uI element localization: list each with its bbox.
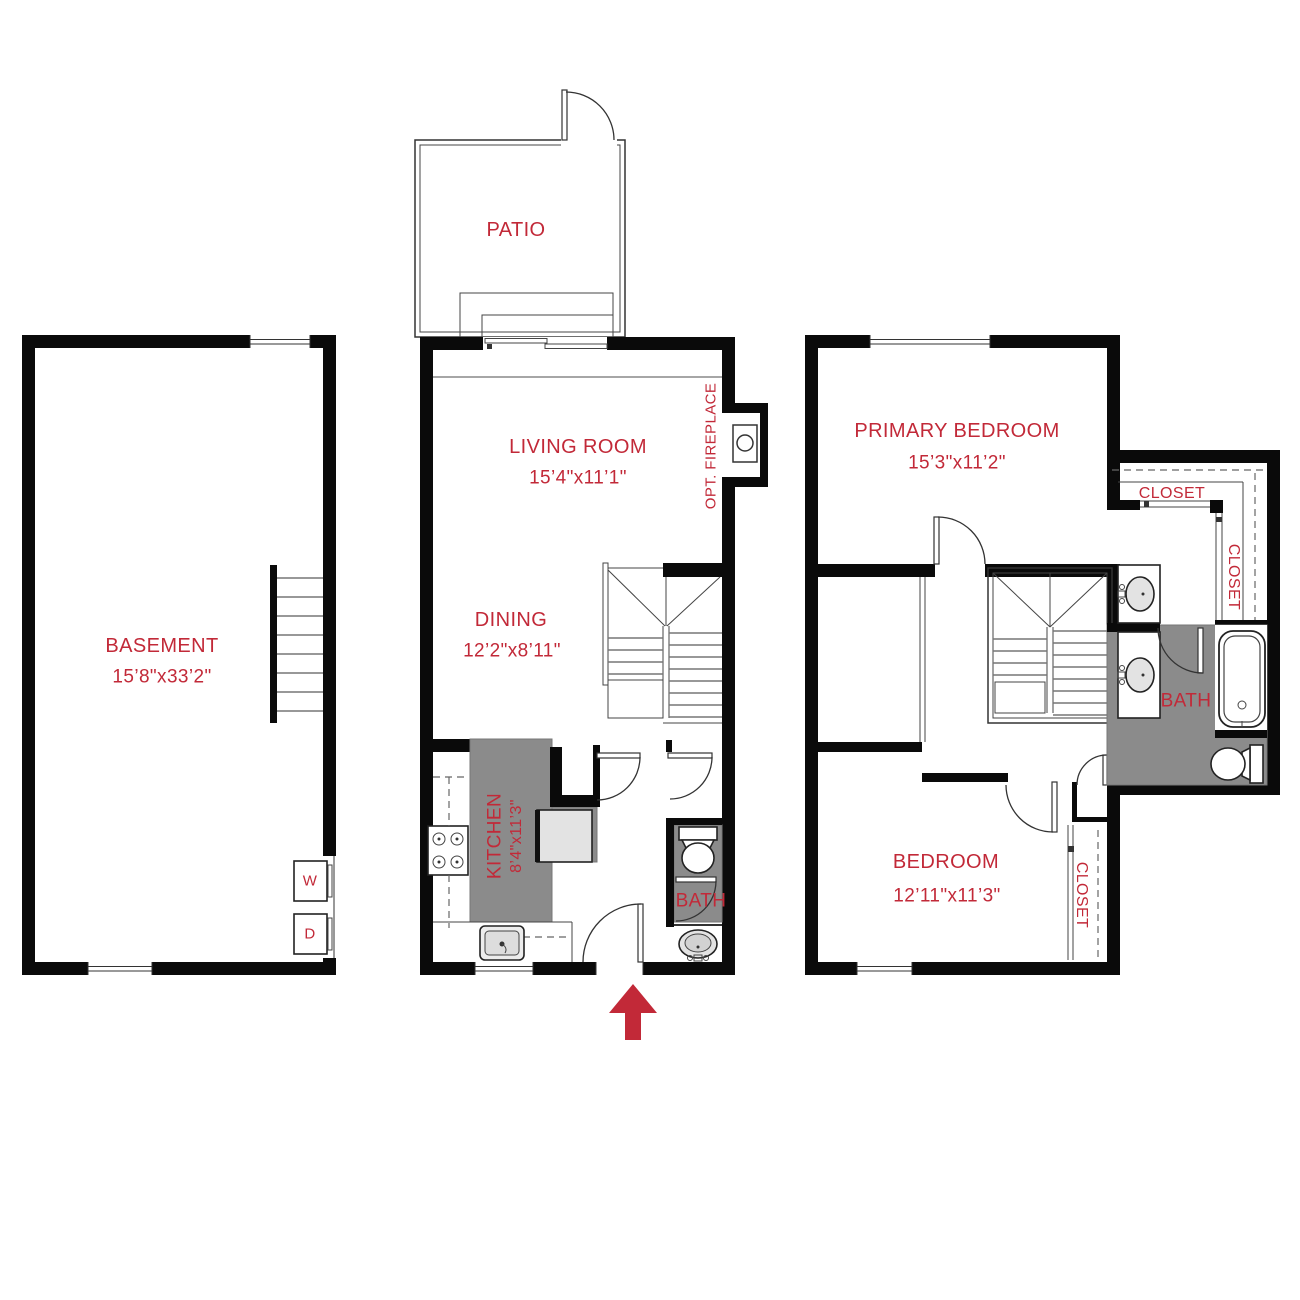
patio-label: PATIO	[486, 220, 545, 240]
kitchen	[420, 739, 640, 975]
main-stairs-icon	[603, 563, 722, 723]
sliding-door-icon	[483, 337, 607, 350]
primary-window	[870, 335, 990, 348]
fireplace-icon	[722, 403, 768, 487]
upper-bath-label: BATH	[1161, 692, 1212, 711]
fridge-icon	[535, 810, 592, 862]
primary-door-swing	[934, 517, 985, 564]
hall-door-swing	[668, 753, 712, 799]
main-bath-label: BATH	[676, 892, 727, 911]
kitchen-window	[475, 962, 533, 975]
closet-side-label: CLOSET	[1225, 544, 1241, 610]
basement-label: BASEMENT	[105, 636, 218, 656]
basement-stairs-icon	[270, 565, 323, 723]
pantry	[562, 747, 593, 795]
dining-dims: 12’2"x8’11"	[463, 642, 561, 661]
stove-icon	[428, 826, 468, 875]
dining-label: DINING	[475, 610, 547, 630]
patio-steps	[460, 293, 613, 337]
dryer-label: D	[304, 927, 315, 942]
primary-bedroom-dims: 15’3"x11’2"	[908, 454, 1006, 473]
entry-arrow-icon	[609, 984, 657, 1040]
kitchen-label: KITCHEN	[486, 793, 505, 879]
bath-hall-door-swing	[1077, 755, 1107, 785]
closet-bedroom-label: CLOSET	[1073, 862, 1089, 928]
opt-fireplace-label: OPT. FIREPLACE	[704, 383, 719, 509]
bathtub-icon	[1215, 625, 1267, 730]
basement-dims: 15’8"x33’2"	[112, 668, 211, 687]
basement-window-bottom	[88, 962, 152, 975]
toilet-icon	[679, 827, 717, 873]
bedroom-dims: 12’11"x11’3"	[893, 887, 1000, 906]
living-room-dims: 15’4"x11’1"	[529, 469, 627, 488]
basement-window-top	[250, 335, 310, 348]
floor-plan: BASEMENT 15’8"x33’2" PATIO LIVING ROOM 1…	[0, 0, 1300, 1300]
pantry-door-swing	[597, 753, 640, 800]
main-bath	[666, 740, 722, 962]
bedroom-label: BEDROOM	[893, 852, 999, 872]
patio	[415, 90, 625, 337]
bedroom-door-swing	[1006, 782, 1057, 832]
bedroom-window	[857, 962, 912, 975]
vanity-sink-bath-icon	[1118, 632, 1160, 718]
patio-gate-door-swing	[562, 90, 614, 140]
upper-toilet-icon	[1211, 745, 1263, 783]
kitchen-dims: 8’4"x11’3"	[509, 799, 525, 873]
closet-top-label: CLOSET	[1139, 486, 1205, 502]
vanity-sink-top-icon	[1118, 565, 1160, 623]
upper-stairs-icon	[988, 568, 1112, 723]
washer-label: W	[303, 874, 318, 889]
primary-bedroom-label: PRIMARY BEDROOM	[854, 421, 1059, 441]
kitchen-sink-icon	[480, 926, 524, 960]
living-room-label: LIVING ROOM	[509, 437, 647, 457]
